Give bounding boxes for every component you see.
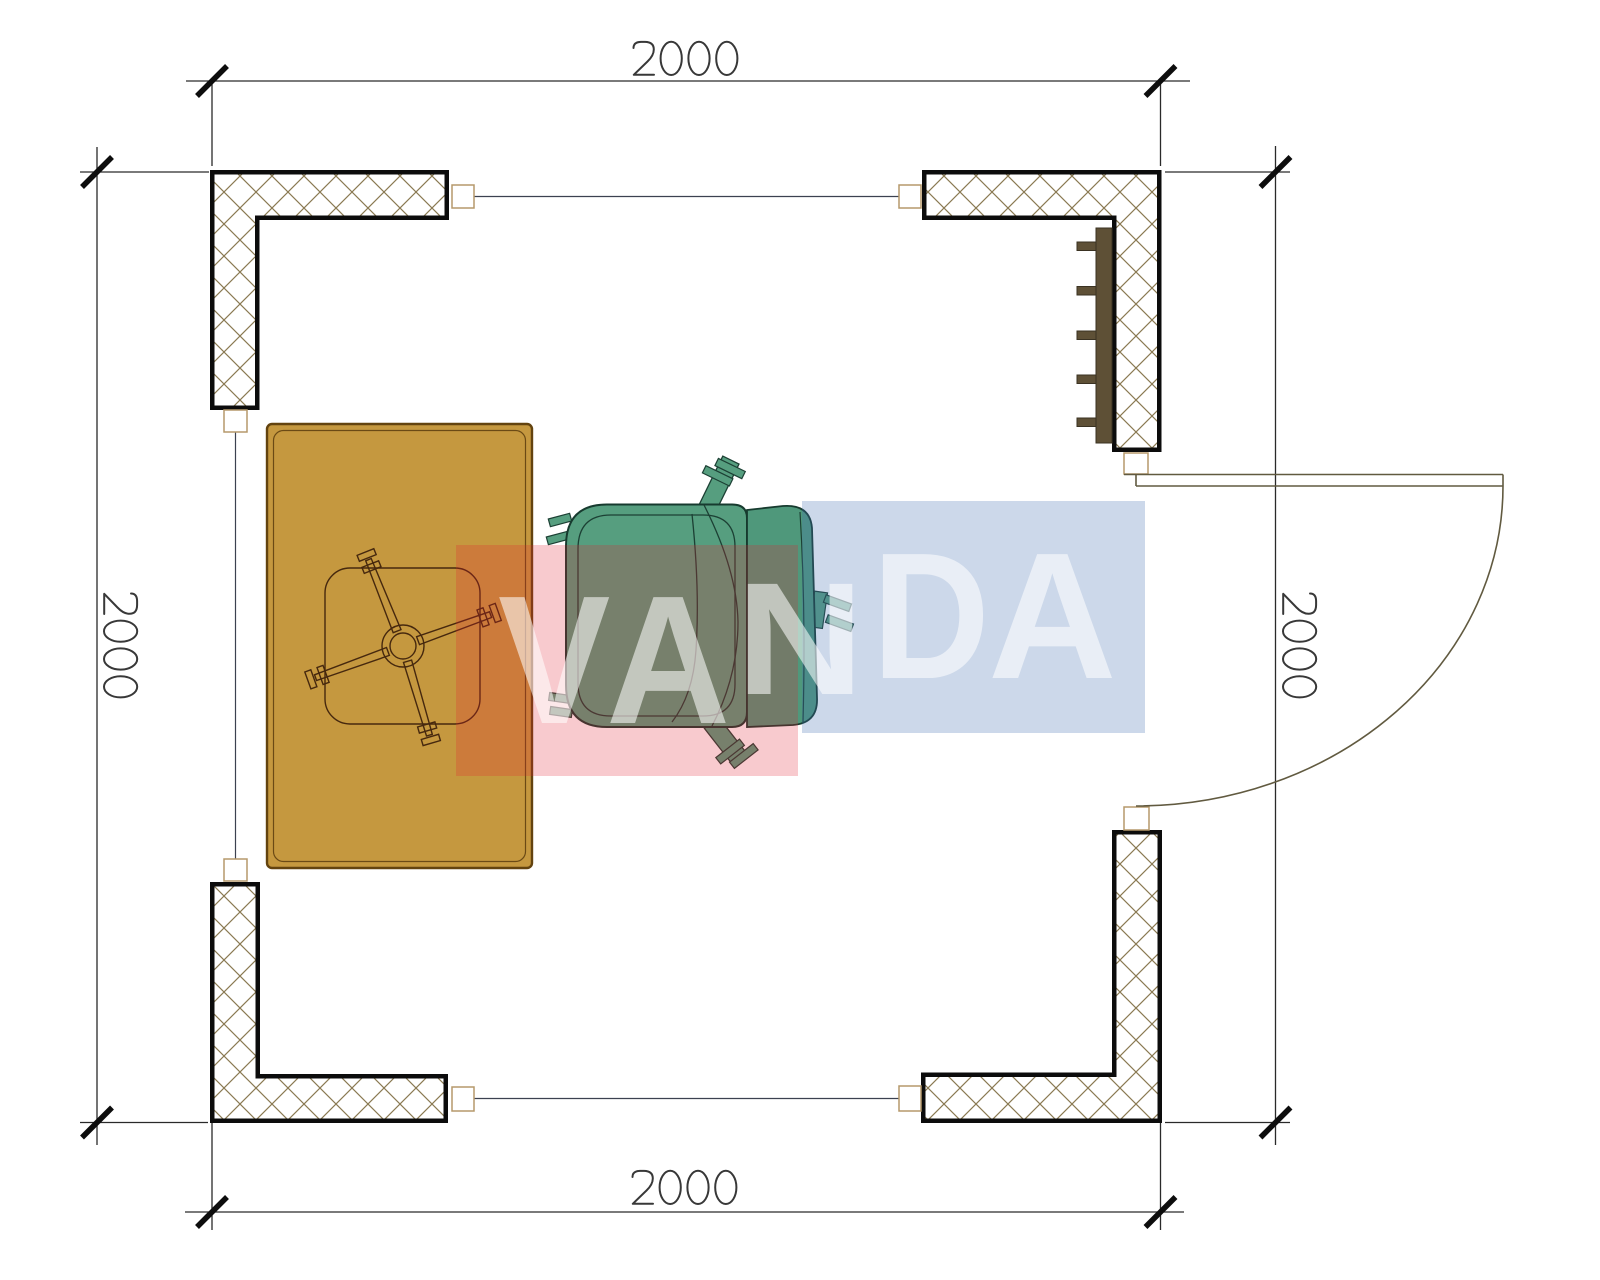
svg-text:D: D xyxy=(872,516,990,717)
svg-text:V: V xyxy=(498,559,610,763)
svg-text:A: A xyxy=(988,515,1117,716)
svg-text:A: A xyxy=(606,557,730,762)
svg-text:N: N xyxy=(736,549,864,728)
